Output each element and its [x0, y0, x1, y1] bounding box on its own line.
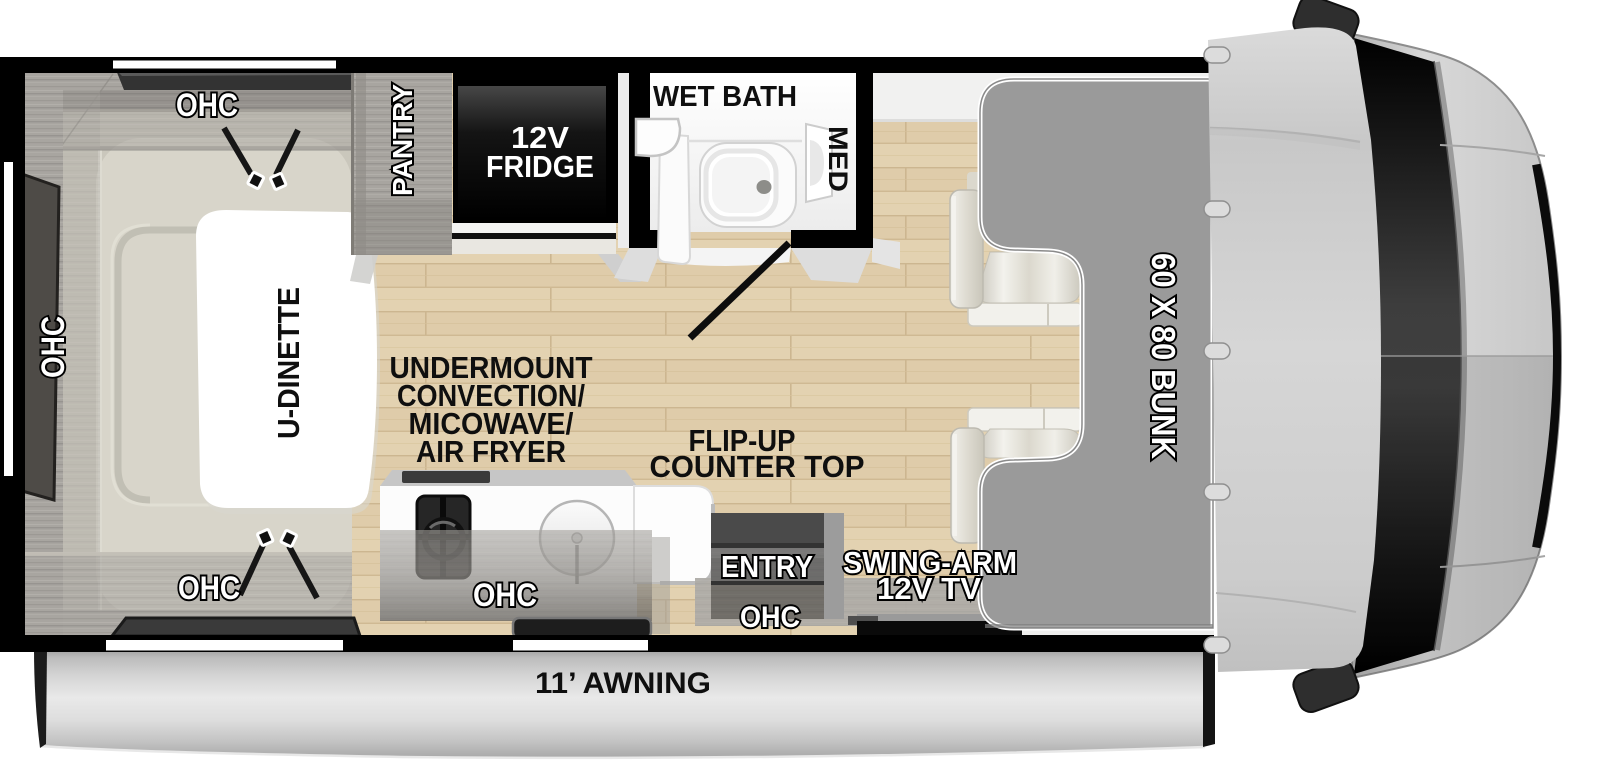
svg-text:OHC: OHC — [176, 87, 238, 123]
svg-text:WET BATH: WET BATH — [653, 81, 797, 113]
svg-text:U-DINETTE: U-DINETTE — [271, 287, 306, 439]
svg-text:AIR FRYER: AIR FRYER — [416, 434, 566, 469]
svg-text:MED: MED — [823, 126, 853, 192]
svg-text:PANTRY: PANTRY — [387, 84, 418, 196]
svg-text:COUNTER TOP: COUNTER TOP — [650, 449, 865, 484]
svg-text:FRIDGE: FRIDGE — [486, 149, 594, 184]
svg-text:60 X 80 BUNK: 60 X 80 BUNK — [1145, 253, 1182, 459]
svg-text:OHC: OHC — [740, 601, 800, 634]
svg-text:11’ AWNING: 11’ AWNING — [535, 667, 711, 700]
svg-text:OHC: OHC — [178, 570, 240, 606]
svg-text:ENTRY: ENTRY — [721, 549, 813, 584]
svg-text:OHC: OHC — [35, 316, 71, 378]
svg-text:OHC: OHC — [473, 577, 537, 613]
svg-text:12V TV: 12V TV — [877, 571, 981, 606]
